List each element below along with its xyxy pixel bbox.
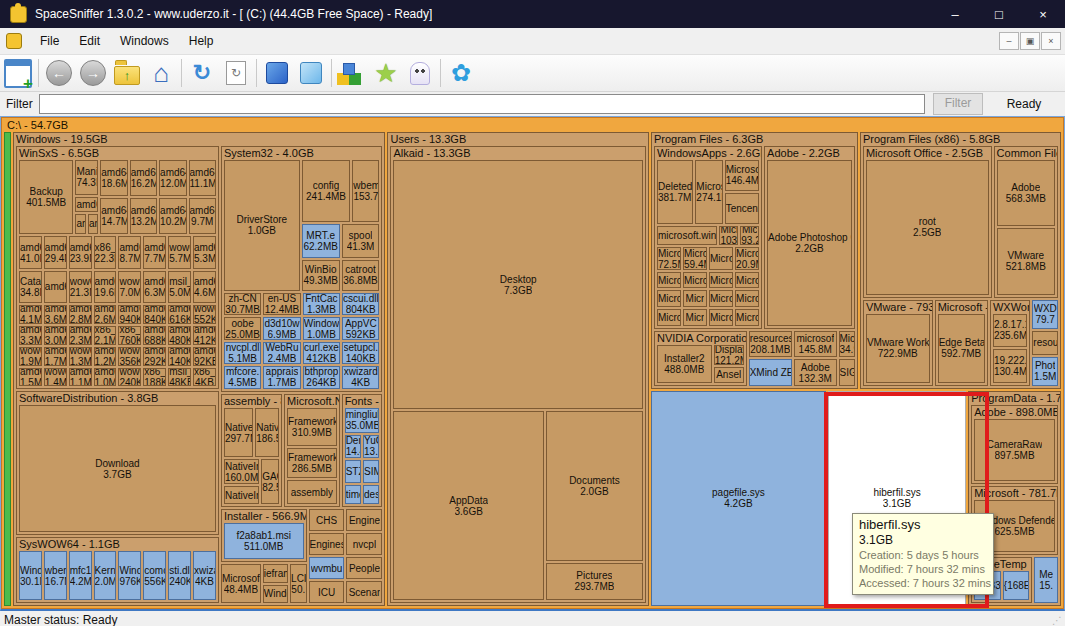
block-label: ICU xyxy=(318,587,335,598)
dir-wow6[interactable]: wow6552KB xyxy=(193,305,216,324)
dir-amd64[interactable]: amd641.0MB xyxy=(94,368,117,387)
dir-amd64[interactable]: amd648.7MB xyxy=(118,236,141,269)
minimize-button[interactable]: – xyxy=(933,0,977,28)
dir-lci[interactable]: LCI50. xyxy=(290,564,306,603)
dir-engine[interactable]: Engine xyxy=(346,509,382,531)
dir-root[interactable]: root2.5GB xyxy=(866,160,989,295)
file-cscui-dll[interactable]: cscui.dll804KB xyxy=(342,293,379,315)
block-label: STZ xyxy=(346,466,360,477)
dir-wow6[interactable]: wow6240KB xyxy=(118,368,141,387)
block-label: mingliub. xyxy=(346,409,379,420)
dir-winbio[interactable]: WinBio49.3MB xyxy=(302,260,340,291)
block-label: amd64 xyxy=(20,242,41,253)
dir-2-8-17-13[interactable]: 2.8.17.13235.6MB xyxy=(993,314,1027,348)
dir-catalo[interactable]: Catalo34.8M xyxy=(19,271,42,303)
folder-header: WinSxS - 6.5GB xyxy=(17,147,218,160)
folder-winsxs-6-5gb[interactable]: WinSxS - 6.5GBBackup401.5MBManife74.3Mam… xyxy=(16,146,219,389)
block-label: Desktop xyxy=(500,274,537,285)
dir-ansel[interactable]: Ansel xyxy=(714,367,744,383)
dir-micros[interactable]: Micros xyxy=(735,309,759,326)
block-size: 36.8MB xyxy=(343,275,377,286)
mdi-close-button[interactable]: × xyxy=(1041,32,1061,50)
dir-nativeim[interactable]: NativeIm xyxy=(224,486,259,504)
file-wxd[interactable]: WXD79.7 xyxy=(1032,300,1058,329)
dir-oobe[interactable]: oobe25.0MB xyxy=(224,317,261,339)
toolbar-separator xyxy=(331,59,332,87)
configure-icon[interactable]: ✿ xyxy=(447,59,475,87)
block-label: Micro xyxy=(684,275,706,286)
block-size: 15. xyxy=(1039,580,1053,591)
dir-documents[interactable]: Documents2.0GB xyxy=(546,411,643,561)
dir-x86-w[interactable]: x86_w4KB xyxy=(193,368,216,387)
block-size: 12.0M xyxy=(160,178,185,189)
dir-micro[interactable]: Micro59.4M xyxy=(683,247,707,270)
block-label: Framework xyxy=(288,452,336,463)
treemap-layout: amd6441.0Mamd6429.4Mamd6423.9Mx86_m22.3M… xyxy=(19,236,216,269)
block-label: amd64 xyxy=(144,276,165,287)
dir-micro[interactable]: Micro xyxy=(735,272,759,289)
dir-microso[interactable]: Microso xyxy=(657,290,681,307)
treemap-layout: Den14.4YuG13.0 xyxy=(345,435,380,458)
dir-pictures[interactable]: Pictures293.7MB xyxy=(546,563,643,600)
file-phot[interactable]: Phot1.5M xyxy=(1032,357,1058,386)
block-label: amd64 xyxy=(45,326,66,335)
block-label: Micro xyxy=(684,248,706,259)
dir-amd64[interactable]: amd6419.6M xyxy=(94,271,117,303)
block-size: 240K xyxy=(169,576,190,587)
dir-amd64[interactable]: amd6416.2M xyxy=(130,160,157,196)
dir-amd64[interactable]: amd64 xyxy=(44,271,67,303)
dir-wow64[interactable]: wow6421.3M xyxy=(69,271,92,303)
dir-micros[interactable]: Micros72.5M xyxy=(657,247,681,270)
dir-amd64[interactable]: amd6418.6MB xyxy=(100,160,127,196)
dir-wow6[interactable]: wow6356KB xyxy=(118,347,141,366)
dir-micros[interactable]: Micros xyxy=(735,290,759,307)
folder-microsoft-office-2-5gb[interactable]: Microsoft Office - 2.5GBroot2.5GB xyxy=(863,146,992,298)
block-label: Adobe xyxy=(1011,182,1040,193)
folder-installer-566-9mb[interactable]: Installer - 566.9MBf2a8ab1.msi511.0MB xyxy=(221,509,307,562)
dir-amd64[interactable]: amd642.8MB xyxy=(69,305,92,324)
dir-x86-m[interactable]: x86_m22.3M xyxy=(94,236,117,269)
block-size: 79.7 xyxy=(1035,314,1054,325)
folder-microsoft-6[interactable]: Microsoft - 6Edge Beta592.7MB xyxy=(935,300,988,386)
file-apprais[interactable]: apprais1.7MB xyxy=(263,366,300,388)
mdi-window-controls: – ▣ × xyxy=(999,32,1061,50)
dir-amd64[interactable]: amd642.6MB xyxy=(94,305,117,324)
dir-desktop[interactable]: Desktop7.3GB xyxy=(393,160,643,409)
dir-display[interactable]: Display121.2M xyxy=(714,345,744,365)
block-size: 401.5MB xyxy=(26,197,66,208)
folder-adobe-2-2gb[interactable]: Adobe - 2.2GBAdobe Photoshop CC2.2GB xyxy=(764,146,855,329)
block-label: wow6 xyxy=(20,347,41,356)
file-window[interactable]: Window1.0MB xyxy=(303,317,340,339)
filter-input[interactable] xyxy=(39,94,925,114)
file-curl-exe[interactable]: curl.exe412KB xyxy=(303,342,340,364)
folder-microsoft-ne[interactable]: Microsoft.NEFramework6310.9MBFramework28… xyxy=(284,394,340,507)
folder-softwaredistribution-3-8gb[interactable]: SoftwareDistribution - 3.8GBDownload3.7G… xyxy=(16,391,219,535)
dir-assembly[interactable]: assembly xyxy=(287,480,337,504)
folder-common-file[interactable]: Common FileAdobe568.3MBVMware521.8MB xyxy=(994,146,1058,298)
block-label: root xyxy=(919,216,936,227)
structure-cubes-icon[interactable] xyxy=(338,59,366,87)
block-label: Windo xyxy=(20,565,41,576)
folder-syswow64-1-1gb[interactable]: SysWOW64 - 1.1GBWindo30.1Mwbem16.7Mmfc10… xyxy=(16,537,219,603)
dir-micro[interactable]: Micro xyxy=(683,272,707,289)
dir-vmware[interactable]: VMware521.8MB xyxy=(997,228,1055,294)
dir-19-222-1[interactable]: 19.222.1130.4MB xyxy=(993,349,1027,383)
dir-manife[interactable]: Manife74.3M xyxy=(75,160,98,195)
dir-amd64[interactable]: amd643.6MB xyxy=(44,305,67,324)
dir-adobe[interactable]: Adobe132.3M xyxy=(794,359,836,386)
dir-amd64[interactable]: amd644.6MB xyxy=(193,271,216,303)
block-size: 356KB xyxy=(119,356,140,365)
treemap-layout: NVIDIA Corporation - 7Installer2488.0MBD… xyxy=(654,331,855,386)
block-size: 2.2GB xyxy=(795,243,823,254)
dir-zh-cn[interactable]: zh-CN30.7MB xyxy=(224,293,261,315)
block-size: 804KB xyxy=(346,304,376,315)
dir-appdata[interactable]: AppData3.6GB xyxy=(393,411,543,600)
treemap-layout: MicrosoMicrMicrosMicros xyxy=(657,290,759,307)
dir-amd64[interactable]: amd641.5MB xyxy=(19,368,42,387)
dir-amd64[interactable]: amd64140KB xyxy=(168,347,191,366)
folder-vmware-793-5[interactable]: VMware - 793.5VMware Works722.9MB xyxy=(863,300,933,386)
file-desk[interactable]: desk xyxy=(363,485,379,504)
block-size: 30.1M xyxy=(20,576,41,587)
less-detail-cube-icon[interactable] xyxy=(263,59,291,87)
dir-amd64[interactable]: amd641.7MB xyxy=(44,347,67,366)
window-controls: – □ × xyxy=(933,0,1065,28)
filter-button[interactable]: Filter xyxy=(933,93,983,115)
folder-users-13-3gb[interactable]: Users - 13.3GBAlkaid - 13.3GBDesktop7.3G… xyxy=(387,132,649,606)
menu-item-edit[interactable]: Edit xyxy=(69,30,110,52)
dir-edge-beta[interactable]: Edge Beta592.7MB xyxy=(938,314,985,383)
menu-item-windows[interactable]: Windows xyxy=(110,30,179,52)
file-fntcac[interactable]: FntCac1.3MB xyxy=(303,293,340,315)
file-f2a8ab1-msi[interactable]: f2a8ab1.msi511.0MB xyxy=(224,523,304,559)
dir-amd64[interactable]: amd641.1MB xyxy=(69,368,92,387)
file-sti-dll[interactable]: sti.dll240K xyxy=(168,551,191,600)
treemap-layout: VMware - 793.5VMware Works722.9MBMicroso… xyxy=(863,300,1058,386)
dir-cameraraw[interactable]: CameraRaw897.5MB xyxy=(974,419,1055,482)
dir-spool[interactable]: spool41.3M xyxy=(342,224,380,258)
dir-micros[interactable]: Micros xyxy=(709,247,733,270)
file-mfc10[interactable]: mfc104.2M xyxy=(69,551,92,600)
dir-micros[interactable]: Micros xyxy=(657,272,681,289)
ghost-filter-icon[interactable] xyxy=(406,59,434,87)
treemap-layout: mfcore.4.5MBapprais1.7MBbthprop264KBxwiz… xyxy=(224,366,380,388)
block-label: amd64 xyxy=(95,305,116,314)
dir-en-us[interactable]: en-US12.4MB xyxy=(263,293,300,315)
dir-micr[interactable]: Micr xyxy=(683,309,707,326)
dir-engines[interactable]: Engines xyxy=(309,533,345,555)
filter-row: Filter Filter Ready xyxy=(0,92,1065,116)
more-detail-cube-icon[interactable] xyxy=(297,59,325,87)
forward-icon[interactable]: → xyxy=(79,59,107,87)
file-mfcore[interactable]: mfcore.4.5MB xyxy=(224,366,261,388)
menu-item-file[interactable]: File xyxy=(30,30,69,52)
file-xwizard[interactable]: xwizard4KB xyxy=(342,366,379,388)
dir-vmware-works[interactable]: VMware Works722.9MB xyxy=(866,314,930,383)
dir-adobe-photoshop-cc[interactable]: Adobe Photoshop CC2.2GB xyxy=(767,160,852,326)
file-appvc[interactable]: AppVC592KB xyxy=(342,317,379,339)
dir-microsoft-window[interactable]: microsoft.window xyxy=(657,226,717,246)
file-tooltip: hiberfil.sys 3.1GB Creation: 5 days 5 ho… xyxy=(852,513,994,595)
dir-amd6[interactable]: amd6 xyxy=(75,197,98,212)
dir-wow6[interactable]: wow65.7MB xyxy=(168,236,191,269)
file-time[interactable]: time xyxy=(345,485,361,504)
folder-program-files-6-3gb[interactable]: Program Files - 6.3GBWindowsApps - 2.6GB… xyxy=(651,132,858,389)
maximize-button[interactable]: □ xyxy=(977,0,1021,28)
dir-framework6[interactable]: Framework6310.9MB xyxy=(287,408,337,446)
dir-amd64[interactable]: amd643.3MB xyxy=(19,326,42,345)
block-label: Backup xyxy=(30,186,63,197)
folder-windows-19-5gb[interactable]: Windows - 19.5GBWinSxS - 6.5GBBackup401.… xyxy=(13,132,385,606)
dir-nativeir[interactable]: NativeIr297.7MB xyxy=(224,408,253,458)
file-bthprop[interactable]: bthprop264KB xyxy=(303,366,340,388)
dir-amd64[interactable]: amd647.7MB xyxy=(143,236,166,269)
block-size: 976K xyxy=(119,576,140,587)
folder-header: Microsoft - 781.7MB xyxy=(972,487,1057,500)
dir-amd64[interactable]: amd64840KB xyxy=(143,305,166,324)
block-label: msil_p xyxy=(169,276,190,287)
block-label: Nativ xyxy=(256,422,278,433)
dir-amd64[interactable]: amd64616KB xyxy=(168,305,191,324)
dir-windo[interactable]: Windo xyxy=(263,585,288,603)
dir-amd64[interactable]: amd643.0MB xyxy=(44,326,67,345)
file-comc[interactable]: comc556K xyxy=(143,551,166,600)
folder-header: Alkaid - 13.3GB xyxy=(391,147,645,160)
block-label: x86_w xyxy=(194,368,215,377)
dir-amd64[interactable]: amd641.2MB xyxy=(94,347,117,366)
treemap-layout: config241.4MBwbem153.7 xyxy=(302,160,380,222)
dir-amd64[interactable]: amd6412.0M xyxy=(159,160,186,196)
dir-wow6[interactable]: wow61.3MB xyxy=(69,347,92,366)
dir-wbem[interactable]: wbem153.7 xyxy=(352,160,379,222)
dir-msil-a[interactable]: msil_a48KB xyxy=(168,368,191,387)
block-label: zh-CN xyxy=(228,293,256,304)
folder-nvidia-corporation-7[interactable]: NVIDIA Corporation - 7Installer2488.0MBD… xyxy=(654,331,747,386)
file-windo[interactable]: Windo976K xyxy=(118,551,141,600)
dir-nvcpl[interactable]: nvcpl xyxy=(346,533,382,555)
dir-config[interactable]: config241.4MB xyxy=(302,160,351,222)
file-168e6[interactable]: {168E6 xyxy=(1003,571,1030,600)
dir-x86-n[interactable]: x86_n2.1MB xyxy=(94,326,117,345)
dir-resou[interactable]: resou xyxy=(1032,331,1058,355)
block-label: mfc10 xyxy=(70,565,91,576)
dir-amd6[interactable]: amd6 xyxy=(88,214,98,234)
dir-iefram[interactable]: iefram xyxy=(263,564,288,582)
dir-amd6[interactable]: amd6 xyxy=(75,214,85,234)
file-kerne[interactable]: Kerne2.0M xyxy=(94,551,117,600)
new-view-icon[interactable] xyxy=(4,59,32,87)
file-wbem[interactable]: wbem16.7M xyxy=(44,551,67,600)
home-icon[interactable]: ⌂ xyxy=(147,59,175,87)
dir-framework[interactable]: Framework286.5MB xyxy=(287,448,337,479)
dir-scenar[interactable]: Scenar xyxy=(346,581,382,603)
dir-people[interactable]: People xyxy=(346,557,382,579)
treemap-layout: amd6amd6 xyxy=(75,214,98,234)
block-size: 160.0MB xyxy=(225,472,258,483)
dir-nativeim[interactable]: NativeIm160.0MB xyxy=(224,459,259,484)
dir-micr[interactable]: Micr xyxy=(683,290,707,307)
dir-tencent[interactable]: Tencent xyxy=(725,193,759,224)
dir-micr[interactable]: Micr103. xyxy=(719,226,738,246)
back-icon[interactable]: ← xyxy=(45,59,73,87)
rescan-icon[interactable]: ↻ xyxy=(188,59,216,87)
dir-micro[interactable]: Micro20.9M xyxy=(735,247,759,270)
block-size: 1.0GB xyxy=(248,225,276,236)
block-size: 4.5MB xyxy=(228,377,257,388)
folder-up-icon[interactable]: ↑ xyxy=(113,59,141,87)
block-size: 13.0 xyxy=(364,446,378,457)
dir-amd64[interactable]: amd64292KB xyxy=(143,347,166,366)
block-label: xwiza xyxy=(194,565,215,576)
dir-amd64[interactable]: amd6414.7M xyxy=(100,198,127,234)
dir-micros[interactable]: Micros274.1M xyxy=(695,160,722,224)
file-wvmbu[interactable]: wvmbu xyxy=(309,557,345,579)
dir-microsof[interactable]: microsof145.8M xyxy=(794,331,836,358)
dir-amd64[interactable]: amd6441.0M xyxy=(19,236,42,269)
dir-amd64[interactable]: amd642.3MB xyxy=(69,326,92,345)
dir-msil-p[interactable]: msil_p5.0MB xyxy=(168,271,191,303)
file-windo[interactable]: Windo30.1M xyxy=(19,551,42,600)
folder-header: Microsoft.NE xyxy=(285,395,339,408)
dir-catroot[interactable]: catroot36.8MB xyxy=(342,260,380,291)
folder-adobe-898-0mb[interactable]: Adobe - 898.0MBCameraRaw897.5MB xyxy=(971,405,1058,485)
dir-microsof[interactable]: Microsof146.4MB xyxy=(725,160,759,191)
dir-amd64[interactable]: amd6413.2M xyxy=(130,198,157,234)
dir-download[interactable]: Download3.7GB xyxy=(19,405,216,532)
file-webru[interactable]: WebRu2.4MB xyxy=(263,342,300,364)
block-size: 146.4MB xyxy=(726,175,758,186)
dir-deleted[interactable]: Deleted381.7MB xyxy=(657,160,693,224)
block-label: nvcpl xyxy=(353,539,376,550)
dir-amd64[interactable]: amd644.1MB xyxy=(19,305,42,324)
block-size: 1.7MB xyxy=(45,356,66,365)
dir-amd64[interactable]: amd6423.9M xyxy=(69,236,92,269)
dir-installer2[interactable]: Installer2488.0MB xyxy=(657,345,712,383)
file-me[interactable]: Me15. xyxy=(1034,557,1058,603)
dir-gac[interactable]: GAC82.5 xyxy=(261,459,279,504)
folder-header: Microsoft - 6 xyxy=(936,301,987,314)
block-size: 1.9MB xyxy=(20,356,41,365)
dir-wow6[interactable]: wow67.0MB xyxy=(118,271,141,303)
dir-amd64[interactable]: amd64940KB xyxy=(118,305,141,324)
dir-amd64[interactable]: amd6429.4M xyxy=(44,236,67,269)
file-pagefile-sys[interactable]: pagefile.sys4.2GB xyxy=(651,391,826,606)
dir-wow6[interactable]: wow61.9MB xyxy=(19,347,42,366)
treemap-layout: CHSEngineEnginesnvcplwvmbuPeopleICUScena… xyxy=(309,509,383,603)
dir-amd64[interactable]: amd645.3MB xyxy=(193,236,216,269)
treemap-layout: ieframWindo xyxy=(263,564,288,603)
dir-amd64[interactable]: amd646.3MB xyxy=(143,271,166,303)
file-d3d10w[interactable]: d3d10w6.9MB xyxy=(263,317,300,339)
dir-chs[interactable]: CHS xyxy=(309,509,345,531)
block-size: 7.0MB xyxy=(119,287,140,298)
block-label: amd64 xyxy=(95,276,116,287)
file-setupcl[interactable]: setupcl.140KB xyxy=(342,342,379,364)
block-label: amd64 xyxy=(101,167,126,178)
file-yug[interactable]: YuG13.0 xyxy=(363,435,379,458)
mdi-restore-button[interactable]: ▣ xyxy=(1020,32,1040,50)
block-size: 13.2M xyxy=(131,216,156,227)
dir-backup[interactable]: Backup401.5MB xyxy=(19,160,73,234)
dir-adobe[interactable]: Adobe568.3MB xyxy=(997,160,1055,226)
file-den[interactable]: Den14.4 xyxy=(345,435,361,458)
file-xwiza[interactable]: xwiza4KB xyxy=(193,551,216,600)
folder-system32-4-0gb[interactable]: System32 - 4.0GBDriverStore1.0GBconfig24… xyxy=(221,146,383,392)
block-size: 840KB xyxy=(144,314,165,323)
mdi-minimize-button[interactable]: – xyxy=(999,32,1019,50)
dir-micros[interactable]: Micros xyxy=(709,272,733,289)
dir-resources[interactable]: resources208.1MB xyxy=(749,331,792,358)
refresh-view-icon[interactable]: ↻ xyxy=(222,59,250,87)
file-mrt-e[interactable]: MRT.e62.2MB xyxy=(302,224,340,258)
folder-wxwork[interactable]: WXWork -2.8.17.13235.6MB19.222.1130.4MB xyxy=(990,300,1030,386)
block-size: 130.4MB xyxy=(994,366,1026,377)
dir-microsof[interactable]: Microsof48.4MB xyxy=(221,564,261,603)
tooltip-size: 3.1GB xyxy=(859,533,987,548)
treemap-layout: Enginesnvcpl xyxy=(309,533,383,555)
dir-wow6[interactable]: wow61.4MB xyxy=(44,368,67,387)
folder-alkaid-13-3gb[interactable]: Alkaid - 13.3GBDesktop7.3GBAppData3.6GBD… xyxy=(390,146,646,603)
block-size: 9.7M xyxy=(191,216,213,227)
dir-micros[interactable]: Micros xyxy=(709,290,733,307)
block-label: Microsof xyxy=(726,164,758,175)
block-size: 140KB xyxy=(169,356,190,365)
dir-microso[interactable]: Microso xyxy=(657,309,681,326)
dir-amd64[interactable]: amd649.7M xyxy=(189,198,216,234)
dir-x86-n[interactable]: x86_n760KB xyxy=(118,326,141,345)
dir-driverstore[interactable]: DriverStore1.0GB xyxy=(224,160,300,291)
file-xmind-ze[interactable]: XMind ZE xyxy=(749,359,792,386)
folder-fonts-58[interactable]: Fonts - 58mingliub.35.0MBDen14.4YuG13.0S… xyxy=(342,394,383,507)
file-mingliub[interactable]: mingliub.35.0MB xyxy=(345,408,380,433)
dir-micros[interactable]: Micros xyxy=(709,309,733,326)
dir-icu[interactable]: ICU xyxy=(309,581,345,603)
folder-header: WindowsApps - 2.6GB xyxy=(655,147,761,160)
menu-item-help[interactable]: Help xyxy=(179,30,224,52)
block-label: Display xyxy=(715,345,743,355)
file-nvcpl-dl[interactable]: nvcpl.dl5.1MB xyxy=(224,342,261,364)
folder-windowsapps-2-6gb[interactable]: WindowsApps - 2.6GBDeleted381.7MBMicros2… xyxy=(654,146,762,329)
dir-micr[interactable]: Micr34.9 xyxy=(839,331,855,358)
dir-amd64[interactable]: amd6410.2M xyxy=(159,198,186,234)
dir-amd64[interactable]: amd64688KB xyxy=(143,326,166,345)
dir-amd64[interactable]: amd6492KB xyxy=(193,347,216,366)
dir-amd64[interactable]: amd64480KB xyxy=(168,326,191,345)
dir-mic[interactable]: Mic93.2 xyxy=(740,226,759,246)
block-size: 18.6MB xyxy=(101,178,126,189)
star-icon[interactable]: ★ xyxy=(372,59,400,87)
dir-sig[interactable]: SIG xyxy=(839,359,855,386)
close-button[interactable]: × xyxy=(1021,0,1065,28)
dir-amd64[interactable]: amd64412KB xyxy=(193,326,216,345)
dir-x86-n[interactable]: x86_n188KB xyxy=(143,368,166,387)
folder-assembly-886[interactable]: assembly - 886NativeIr297.7MBNativ186.5N… xyxy=(221,394,282,507)
block-label: CameraRaw xyxy=(987,439,1043,450)
file-sim[interactable]: SIM xyxy=(363,460,379,483)
file-stz[interactable]: STZ xyxy=(345,460,361,483)
block-label: amd64 xyxy=(194,347,215,356)
dir-nativ[interactable]: Nativ186.5 xyxy=(255,408,279,458)
block-label: {168E6 xyxy=(1004,580,1029,591)
block-label: Catalo xyxy=(20,276,41,287)
dir-amd64[interactable]: amd6411.1M xyxy=(189,160,216,196)
resize-grip[interactable]: ⋰ xyxy=(1052,615,1063,626)
folder-program-files-x86-5-8gb[interactable]: Program Files (x86) - 5.8GBMicrosoft Off… xyxy=(860,132,1061,389)
block-label: amd64 xyxy=(160,205,185,216)
